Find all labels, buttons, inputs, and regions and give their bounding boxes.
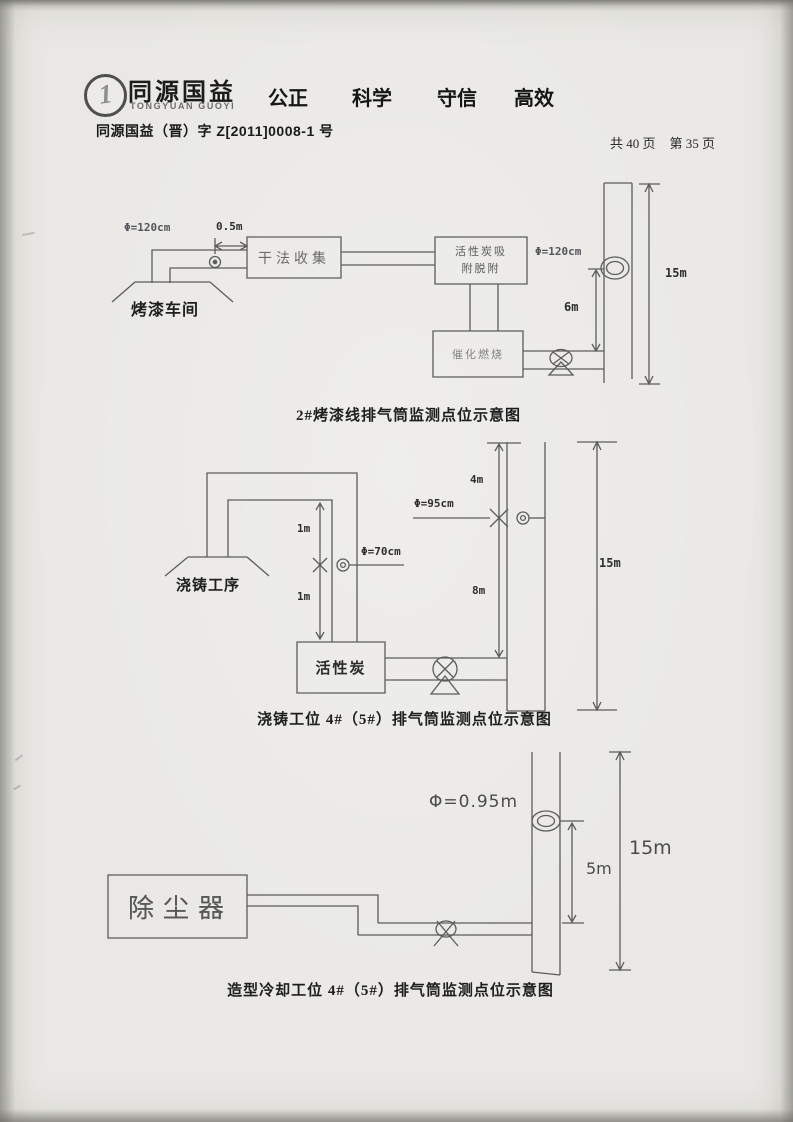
fan-icon xyxy=(431,657,459,694)
diagram-1-drawing xyxy=(0,175,793,400)
diagram-2-drawing xyxy=(0,440,793,735)
scan-edge-top xyxy=(0,0,793,11)
scanned-report-page: 1 同源国益 TONGYUAN GUOYI 公正 科学 守信 高效 同源国益（晋… xyxy=(0,0,793,1122)
diagram-1-caption: 2#烤漆线排气筒监测点位示意图 xyxy=(12,404,793,425)
mid-dist-label: 8m xyxy=(472,584,485,597)
port-height-label: 6m xyxy=(564,300,578,314)
page-info: 共 40 页第 35 页 xyxy=(610,133,729,152)
down-dist-label: 1m xyxy=(297,590,310,603)
source-label: 烤漆车间 xyxy=(131,296,199,320)
fan-icon xyxy=(549,350,573,376)
monitoring-port-icon xyxy=(532,811,560,831)
company-name-en: TONGYUAN GUOYI xyxy=(130,101,235,111)
carbon-box-label: 活性炭 xyxy=(297,642,385,693)
source-label: 浇铸工序 xyxy=(176,574,240,595)
slogan-word: 科学 xyxy=(352,82,392,111)
sampling-point-icon xyxy=(210,257,221,268)
stack-height-label: 15m xyxy=(599,556,621,570)
document-number: 同源国益（晋）字 Z[2011]0008-1 号 xyxy=(96,121,334,141)
top-dist-label: 4m xyxy=(470,473,483,486)
scan-edge-bottom xyxy=(0,1109,793,1122)
stack-diameter-label: Φ=0.95m xyxy=(429,792,518,812)
monitoring-port-icon xyxy=(601,257,629,279)
page-current: 第 35 页 xyxy=(670,136,716,151)
slogan-word: 守信 xyxy=(437,82,477,111)
fan-icon xyxy=(434,921,458,946)
carbon-box-label: 活性炭吸 附脱附 xyxy=(435,244,527,278)
duct-diameter-label: Φ=120cm xyxy=(124,221,170,234)
slogan-word: 公正 xyxy=(268,82,308,111)
duct-diameter-label: Φ=70cm xyxy=(361,545,401,558)
diagram-3-caption: 造型冷却工位 4#（5#）排气筒监测点位示意图 xyxy=(0,979,787,1000)
catalytic-box-label: 催化燃烧 xyxy=(433,331,523,377)
sampling-point-icon xyxy=(517,512,529,524)
page-count: 共 40 页 xyxy=(610,136,656,151)
dry-collection-box-label: 干法收集 xyxy=(247,237,341,278)
company-logo-icon: 1 xyxy=(84,74,127,117)
source-label: 除尘器 xyxy=(108,875,247,938)
up-dist-label: 1m xyxy=(297,522,310,535)
sampling-point-icon xyxy=(337,559,349,571)
port-offset-label: 0.5m xyxy=(216,220,243,233)
stack-height-label: 15m xyxy=(665,266,687,280)
stack-height-label: 15m xyxy=(629,837,672,859)
slogan-word: 高效 xyxy=(514,82,554,111)
stack-diameter-label: Φ=120cm xyxy=(535,245,581,258)
stack-diameter-label: Φ=95cm xyxy=(414,497,454,510)
logo-numeral: 1 xyxy=(97,78,115,111)
port-height-label: 5m xyxy=(586,859,612,878)
diagram-2-caption: 浇铸工位 4#（5#）排气筒监测点位示意图 xyxy=(8,708,793,729)
